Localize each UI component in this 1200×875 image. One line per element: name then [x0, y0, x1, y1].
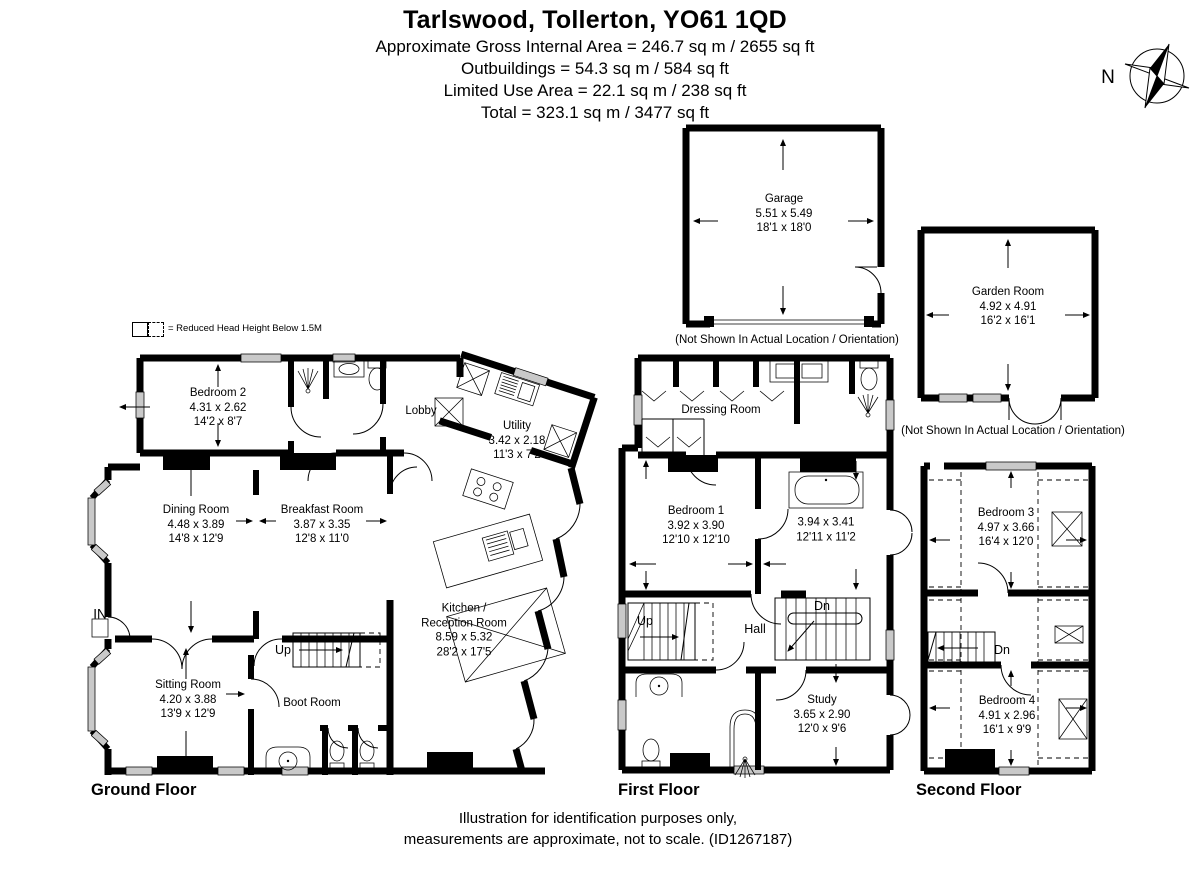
room-metric: 4.20 x 3.88 [155, 693, 221, 708]
compass-star [1125, 44, 1189, 108]
room-metric: 5.51 x 5.49 [756, 207, 813, 222]
study-label: Study 3.65 x 2.90 12'0 x 9'6 [794, 693, 851, 737]
dressing-room-label: Dressing Room [681, 404, 760, 416]
ff-bath-sink-icon [636, 674, 682, 697]
kitchen-island [433, 514, 542, 588]
wc-toilet-icon [330, 741, 344, 770]
bedroom4-label: Bedroom 4 4.91 x 2.96 16'1 x 9'9 [979, 694, 1036, 738]
room-name: Dining Room [163, 503, 229, 518]
room-metric: 4.31 x 2.62 [190, 401, 247, 416]
bathroom-dims-label: 3.94 x 3.41 12'11 x 11'2 [796, 515, 856, 544]
stairs-up-label: Up [275, 643, 291, 657]
garage-label: Garage 5.51 x 5.49 18'1 x 18'0 [756, 192, 813, 236]
room-metric: 3.92 x 3.90 [662, 519, 730, 534]
room-metric: 8.59 x 5.32 [421, 631, 507, 646]
breakfast-room-label: Breakfast Room 3.87 x 3.35 12'8 x 11'0 [281, 503, 363, 547]
ff-dn-label: Dn [814, 599, 830, 613]
first-floor-walls [618, 358, 894, 774]
room-name: Breakfast Room [281, 503, 363, 518]
room-name: Garden Room [972, 285, 1044, 300]
area-line-1: Approximate Gross Internal Area = 246.7 … [0, 37, 1190, 57]
room-imperial: 13'9 x 12'9 [155, 707, 221, 722]
kitchen-label: Kitchen / Reception Room 8.59 x 5.32 28'… [421, 602, 507, 661]
room-name: Sitting Room [155, 678, 221, 693]
sf-dn-label: Dn [994, 643, 1010, 657]
header: Tarlswood, Tollerton, YO61 1QD Approxima… [0, 6, 1190, 123]
room-name: Bedroom 4 [979, 694, 1036, 709]
room-imperial: 11'3 x 7'2 [489, 448, 546, 463]
rooflight-bedroom3-icon [1052, 512, 1082, 546]
rooflight-bedroom4-icon [1059, 699, 1087, 739]
area-line-4: Total = 323.1 sq m / 3477 sq ft [0, 103, 1190, 123]
room-imperial: 28'2 x 17'5 [421, 646, 507, 661]
ff-toilet-icon [860, 360, 878, 390]
footer-disclaimer: Illustration for identification purposes… [0, 808, 1196, 850]
legend-text: = Reduced Head Height Below 1.5M [168, 323, 322, 334]
room-metric: 4.97 x 3.66 [978, 521, 1035, 536]
footer-line-1: Illustration for identification purposes… [0, 808, 1196, 829]
room-name-1: Kitchen / [421, 602, 507, 617]
room-imperial: 14'8 x 12'9 [163, 532, 229, 547]
room-name: Study [794, 693, 851, 708]
ff-shower-icon [858, 394, 878, 417]
stairs-up-first [628, 603, 713, 660]
room-imperial: 14'2 x 8'7 [190, 415, 247, 430]
page-title: Tarlswood, Tollerton, YO61 1QD [0, 6, 1190, 35]
room-imperial: 16'2 x 16'1 [972, 314, 1044, 329]
room-metric: 3.42 x 2.18 [489, 434, 546, 449]
area-line-3: Limited Use Area = 22.1 sq m / 238 sq ft [0, 81, 1190, 101]
first-floor-plan [616, 349, 916, 781]
shower-icon [298, 358, 326, 399]
room-metric: 4.48 x 3.89 [163, 518, 229, 533]
room-imperial: 12'10 x 12'10 [662, 533, 730, 548]
garden-room-caption: (Not Shown In Actual Location / Orientat… [901, 425, 1125, 437]
legend-box-solid [132, 322, 148, 337]
room-metric: 3.65 x 2.90 [794, 708, 851, 723]
bedroom1-label: Bedroom 1 3.92 x 3.90 12'10 x 12'10 [662, 504, 730, 548]
area-line-2: Outbuildings = 54.3 sq m / 584 sq ft [0, 59, 1190, 79]
compass-north-label: N [1101, 67, 1115, 89]
footer-line-2: measurements are approximate, not to sca… [0, 829, 1196, 850]
room-metric: 4.92 x 4.91 [972, 300, 1044, 315]
room-imperial: 16'4 x 12'0 [978, 535, 1035, 550]
bath-icon [789, 472, 863, 508]
room-imperial: 12'0 x 9'6 [794, 722, 851, 737]
room-metric: 3.94 x 3.41 [796, 515, 856, 530]
bedroom3-label: Bedroom 3 4.97 x 3.66 16'4 x 12'0 [978, 506, 1035, 550]
sink-icon [334, 361, 364, 377]
room-name: Bedroom 3 [978, 506, 1035, 521]
room-name: Bedroom 1 [662, 504, 730, 519]
room-metric: 4.91 x 2.96 [979, 709, 1036, 724]
dining-room-label: Dining Room 4.48 x 3.89 14'8 x 12'9 [163, 503, 229, 547]
floorplan-page: Tarlswood, Tollerton, YO61 1QD Approxima… [0, 0, 1200, 875]
room-name: Bedroom 2 [190, 386, 247, 401]
lobby-label: Lobby [405, 405, 436, 417]
ff-up-label: Up [637, 614, 653, 628]
first-floor-title: First Floor [618, 781, 700, 800]
wc2-toilet-icon [360, 741, 374, 770]
rooflight-landing-icon [1055, 626, 1083, 643]
room-name: Utility [489, 419, 546, 434]
garden-room-label: Garden Room 4.92 x 4.91 16'2 x 16'1 [972, 285, 1044, 329]
entrance-label: IN [93, 607, 107, 622]
room-imperial: 16'1 x 9'9 [979, 723, 1036, 738]
room-name: Garage [756, 192, 813, 207]
hob-icon [463, 469, 513, 509]
room-metric: 3.87 x 3.35 [281, 518, 363, 533]
garage-caption: (Not Shown In Actual Location / Orientat… [675, 334, 899, 346]
second-floor-title: Second Floor [916, 781, 1021, 800]
ground-floor-title: Ground Floor [91, 781, 196, 800]
ff-toilet2-icon [642, 739, 660, 768]
sitting-room-label: Sitting Room 4.20 x 3.88 13'9 x 12'9 [155, 678, 221, 722]
room-imperial: 18'1 x 18'0 [756, 221, 813, 236]
boot-room-label: Boot Room [283, 697, 341, 709]
legend-box-dashed [148, 322, 164, 337]
bedroom2-label: Bedroom 2 4.31 x 2.62 14'2 x 8'7 [190, 386, 247, 430]
sf-doors [978, 563, 1031, 695]
utility-label: Utility 3.42 x 2.18 11'3 x 7'2 [489, 419, 546, 463]
room-imperial: 12'11 x 11'2 [796, 530, 856, 545]
room-name-2: Reception Room [421, 616, 507, 631]
room-imperial: 12'8 x 11'0 [281, 532, 363, 547]
hall-label: Hall [744, 622, 766, 636]
entrance-step [92, 619, 108, 637]
